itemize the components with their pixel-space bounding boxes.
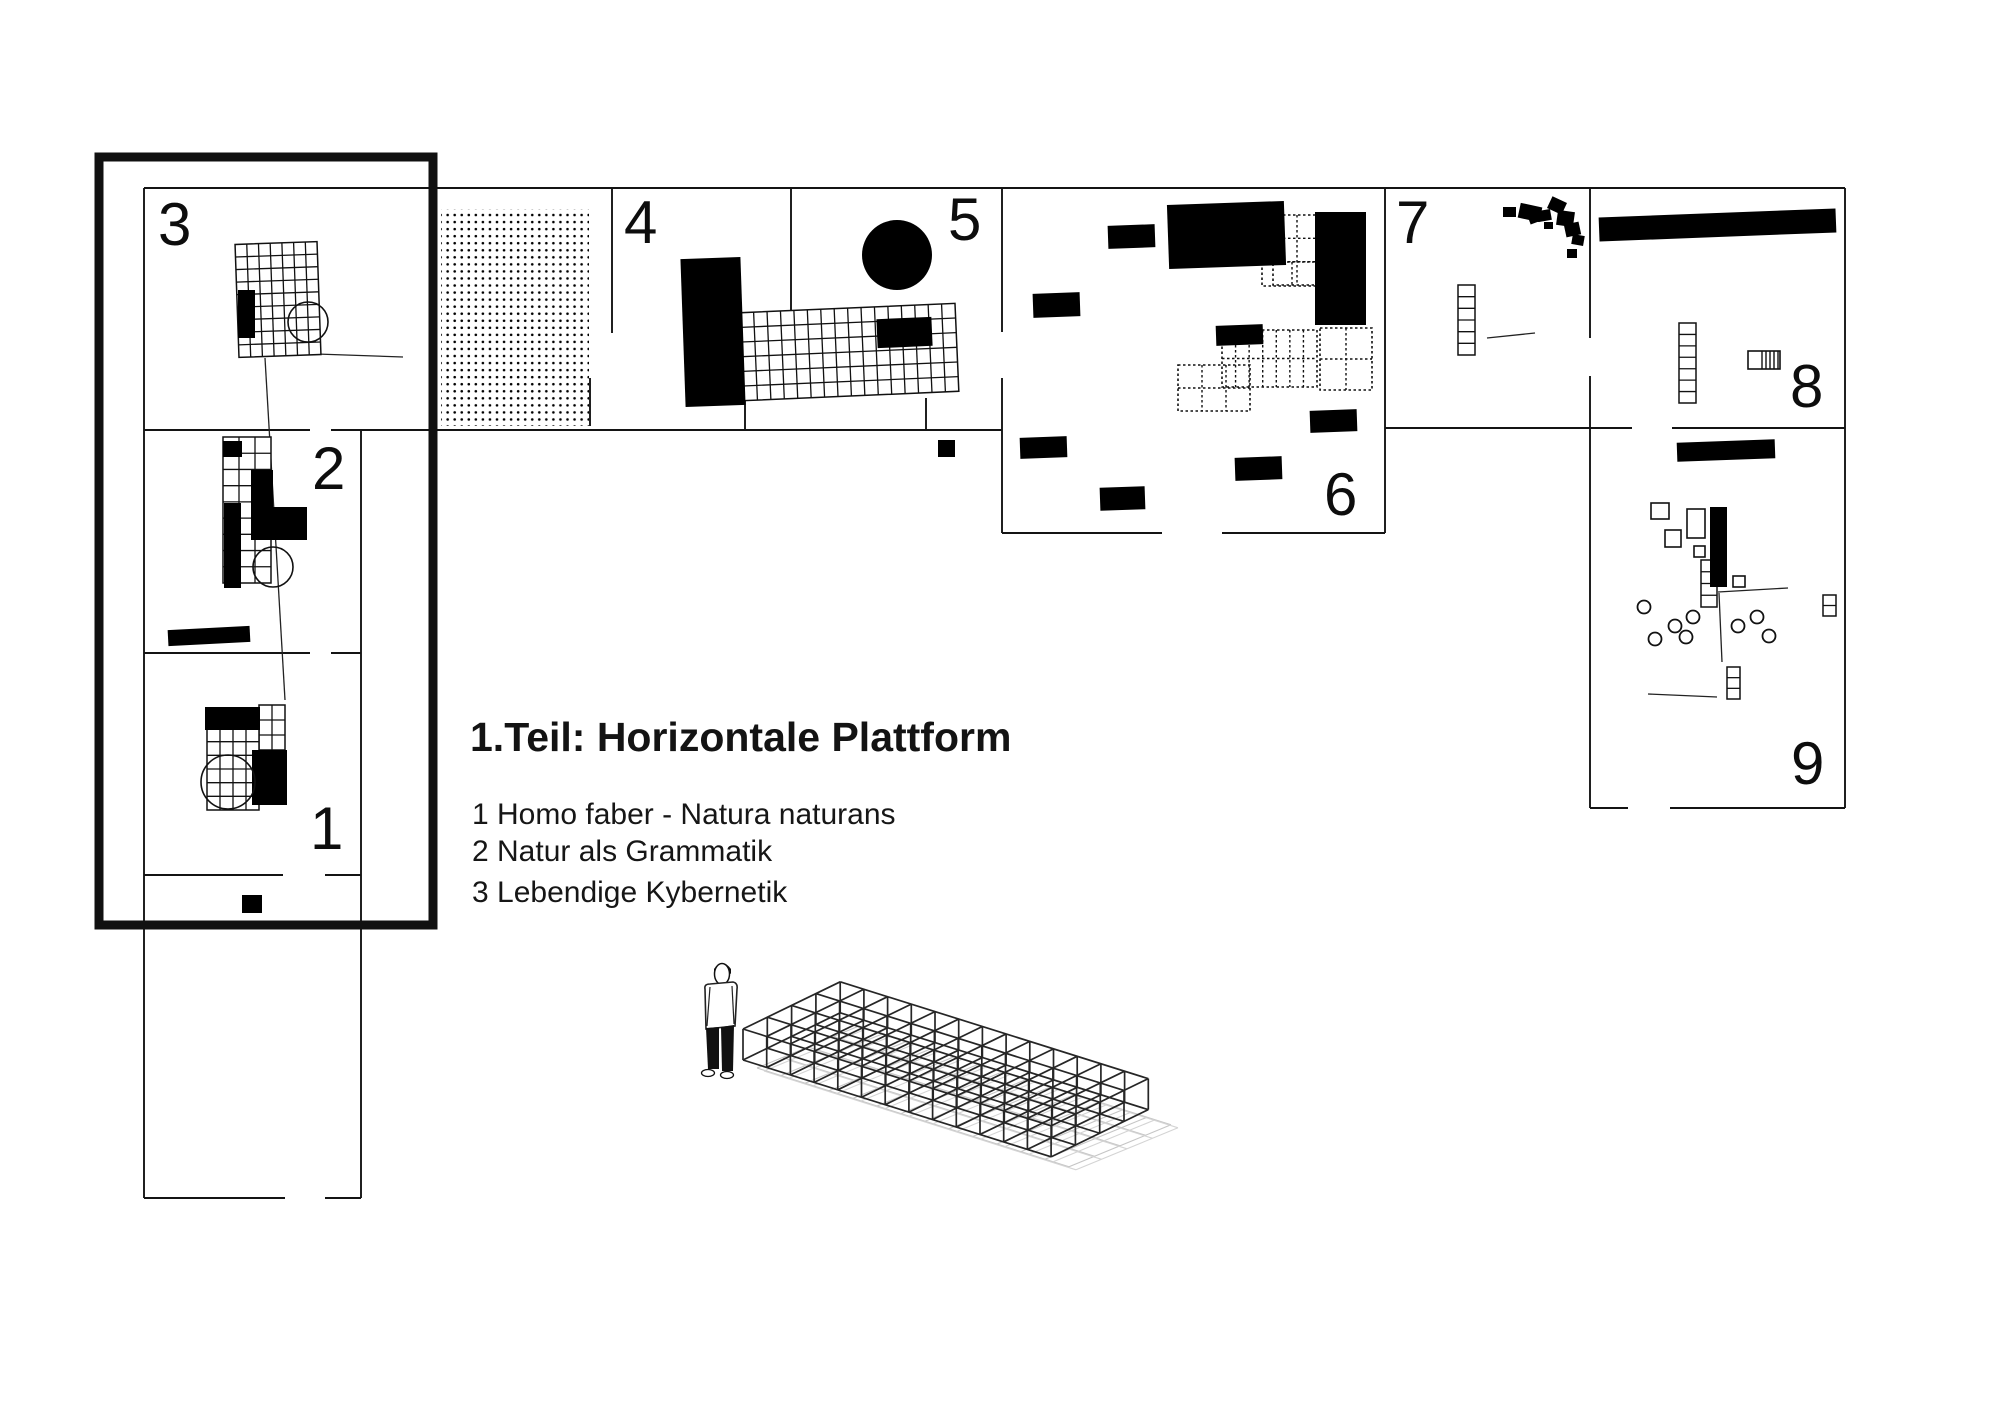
exhibit-block-icon bbox=[1235, 456, 1283, 481]
exhibit-block-icon bbox=[876, 317, 932, 348]
legend-block: 1 Homo faber - Natura naturans 2 Natur a… bbox=[472, 796, 896, 911]
figure-foot bbox=[702, 1070, 715, 1077]
filled-circle-icon bbox=[862, 220, 932, 290]
section-label-7: 7 bbox=[1396, 193, 1429, 253]
section-label-6: 6 bbox=[1324, 465, 1357, 525]
exhibit-block-icon bbox=[1216, 324, 1264, 346]
hatch-box-icon bbox=[1748, 351, 1780, 369]
architectural-plan-drawing bbox=[0, 0, 2000, 1414]
exhibit-block-icon bbox=[242, 895, 262, 913]
small-circle-icon bbox=[1638, 601, 1651, 614]
legend-item-3: 3 Lebendige Kybernetik bbox=[472, 874, 896, 911]
legend-item-2: 2 Natur als Grammatik bbox=[472, 833, 896, 870]
exhibit-block-icon bbox=[251, 507, 307, 540]
section8-grid-strip bbox=[1679, 323, 1696, 403]
small-circle-icon bbox=[1751, 611, 1764, 624]
section7-grid-strip bbox=[1458, 285, 1475, 355]
legend-item-1: 1 Homo faber - Natura naturans bbox=[472, 796, 896, 833]
small-circle-icon bbox=[1669, 620, 1682, 633]
exhibit-block-icon bbox=[1310, 409, 1358, 433]
exhibit-block-icon bbox=[680, 257, 745, 407]
exhibit-block-icon bbox=[938, 440, 955, 457]
small-circle-icon bbox=[1687, 611, 1700, 624]
open-square-icon bbox=[1733, 576, 1745, 587]
dashed-grid-icon bbox=[1178, 365, 1250, 411]
exhibit-block-icon bbox=[1033, 292, 1081, 318]
open-square-icon bbox=[1687, 509, 1705, 538]
section-label-5: 5 bbox=[948, 190, 981, 250]
open-square-icon bbox=[1651, 503, 1669, 519]
figure-leg bbox=[706, 1027, 719, 1069]
exhibit-block-icon bbox=[1167, 201, 1286, 269]
human-figure-icon bbox=[702, 963, 738, 1079]
dashed-grid-icon bbox=[1320, 328, 1372, 390]
exhibit-block-icon bbox=[1315, 212, 1366, 325]
dot-field-icon bbox=[441, 209, 589, 426]
scatter-blob-icon bbox=[1571, 234, 1585, 246]
exhibit-block-icon bbox=[168, 626, 251, 646]
small-circle-icon bbox=[1680, 631, 1693, 644]
dot-field-icon bbox=[441, 209, 589, 426]
room1-grid-platform bbox=[259, 705, 285, 750]
exhibit-block-icon bbox=[1677, 439, 1776, 461]
plan-canvas: 1 2 3 4 5 6 7 8 9 1.Teil: Horizontale Pl… bbox=[0, 0, 2000, 1414]
section-label-8: 8 bbox=[1790, 357, 1823, 417]
exhibit-block-icon bbox=[1100, 486, 1146, 511]
section9-grid-strip bbox=[1823, 595, 1836, 616]
exhibit-block-icon bbox=[252, 750, 287, 805]
section-label-2: 2 bbox=[312, 439, 345, 499]
grid-outline bbox=[1727, 667, 1740, 699]
figure-foot bbox=[721, 1072, 734, 1079]
section-label-3: 3 bbox=[158, 195, 191, 255]
leader-line bbox=[1487, 333, 1535, 338]
section9-grid-strip bbox=[1727, 667, 1740, 699]
page-title: 1.Teil: Horizontale Plattform bbox=[470, 714, 1011, 761]
scatter-blob-icon bbox=[1567, 249, 1577, 258]
scatter-blob-icon bbox=[1544, 222, 1553, 229]
small-circle-icon bbox=[1763, 630, 1776, 643]
leader-line bbox=[1648, 694, 1717, 697]
plan-walls bbox=[144, 188, 1845, 1198]
exhibit-block-icon bbox=[1108, 224, 1156, 249]
exhibit-block-icon bbox=[1710, 507, 1727, 587]
shadow-grid-line bbox=[783, 1058, 1095, 1157]
exhibit-block-icon bbox=[205, 707, 260, 730]
open-square-icon bbox=[1665, 530, 1681, 547]
shadow-grid-line bbox=[834, 1037, 1146, 1136]
section-label-9: 9 bbox=[1791, 734, 1824, 794]
exhibit-block-icon bbox=[238, 290, 255, 338]
exhibit-block-icon bbox=[1020, 436, 1068, 459]
dashed-grid-icon bbox=[1262, 262, 1322, 286]
figure-head bbox=[715, 964, 730, 985]
small-circle-icon bbox=[1649, 633, 1662, 646]
scatter-blob-icon bbox=[1503, 207, 1516, 217]
leader-line bbox=[1718, 588, 1788, 592]
section-label-4: 4 bbox=[624, 193, 657, 253]
small-circle-icon bbox=[1732, 620, 1745, 633]
exhibit-block-icon bbox=[1599, 208, 1837, 241]
exhibit-block-icon bbox=[251, 470, 273, 512]
exhibit-block-icon bbox=[223, 441, 242, 457]
open-square-icon bbox=[1694, 546, 1705, 557]
figure-leg bbox=[721, 1025, 734, 1071]
leader-line bbox=[1719, 593, 1722, 662]
exhibit-block-icon bbox=[224, 503, 241, 588]
section-label-1: 1 bbox=[310, 799, 343, 859]
